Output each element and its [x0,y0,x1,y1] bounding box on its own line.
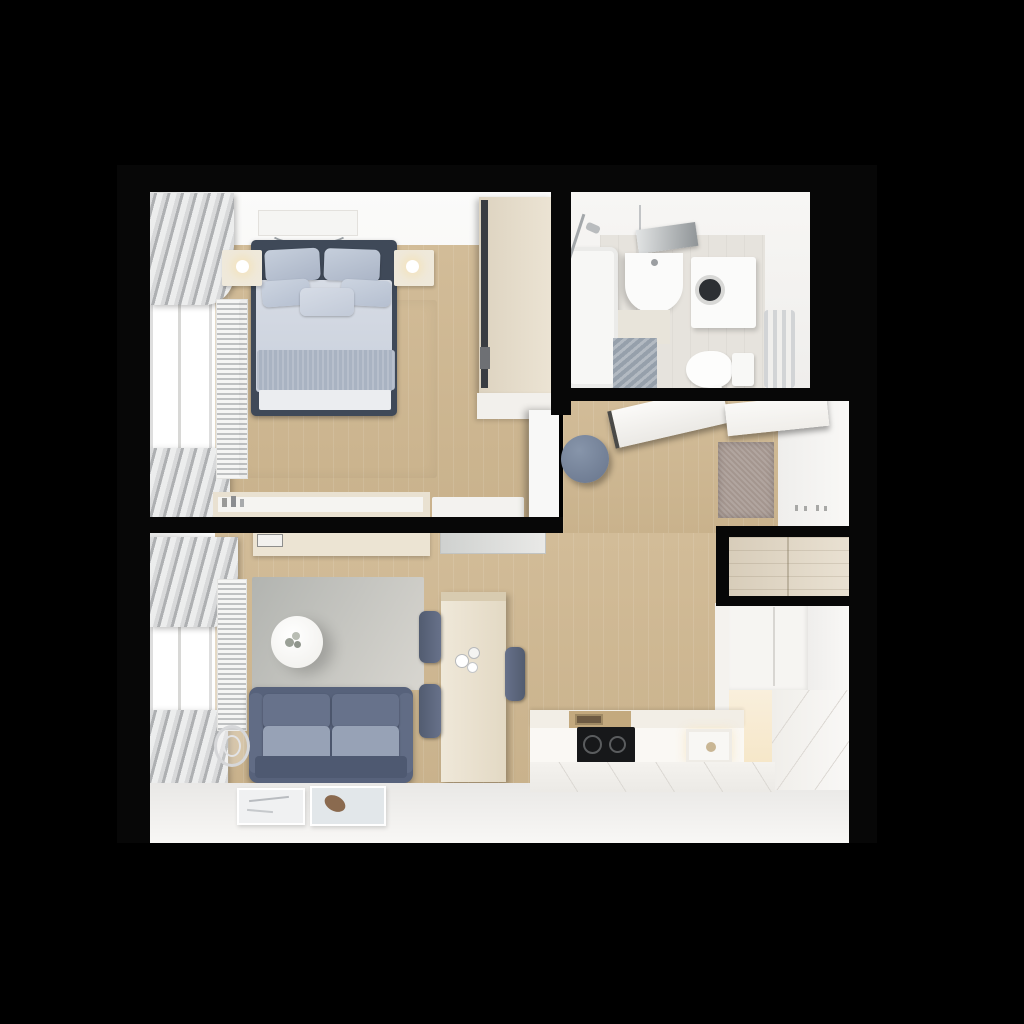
bedroom-door-open [529,410,559,522]
bed-pillow-right [323,248,380,282]
bedroom-dresser [213,492,430,520]
dresser-bottle-3 [240,499,244,507]
wall-hook-2 [804,506,807,511]
nightstand-lamp-right [406,260,419,273]
nightstand-lamp-left [236,260,249,273]
bed-blanket [257,350,395,390]
wall-hook-1 [795,505,798,511]
bath-towel-grey [613,338,657,390]
wall-closet-bottom [716,596,857,606]
bedroom-curtain-top [150,193,234,305]
picture-1-stroke [249,796,289,802]
bedroom-window-mullion [178,300,181,460]
wall-bedroom-living-divider [117,517,563,533]
coffee-table [271,616,323,668]
plant-leaf-3 [294,641,301,648]
sofa-back-cushion-left [263,694,330,728]
wooden-board [569,711,631,728]
dresser-bottle-2 [231,496,236,507]
dining-table [441,592,506,782]
cooktop-burner-left [583,735,602,754]
wardrobe-handle [480,347,490,369]
washing-machine [691,257,756,328]
plant-leaf-2 [292,632,300,640]
cooktop [577,727,635,763]
plant-leaf-1 [285,638,294,647]
wire-basket-inner [223,735,241,757]
sink-drain [706,742,716,752]
living-sideboard [253,529,430,556]
wall-hook-4 [824,506,827,511]
picture-2-leaf [322,792,348,816]
washer-porthole [695,275,725,305]
wall-closet-left [716,526,729,606]
bathtub [566,247,618,388]
sofa [249,687,413,783]
bedroom-window [150,300,212,460]
doormat [718,442,774,518]
toilet-tank [732,353,754,386]
bed-pillow-left [264,248,321,283]
towel-radiator [764,310,795,388]
vanity-sink [625,253,683,313]
tableware-plate-2 [467,662,478,673]
wall-bedroom-bathroom [551,165,571,415]
wall-closet-top [716,526,852,537]
kitchen-sink [686,729,732,763]
picture-1-stroke-2 [247,809,273,813]
dresser-top [218,497,423,512]
wardrobe [479,197,553,393]
bed-sheet [259,390,391,410]
pouf [561,435,609,483]
wall-hook-3 [816,505,819,511]
dining-table-edge [441,592,506,601]
kitchen-right-wall-upper [808,603,849,690]
fridge-tall-unit [729,603,808,690]
kitchen-counter-front [530,762,775,792]
dining-chair-right [505,647,525,701]
fridge-handle [773,607,775,686]
sofa-base [255,756,407,778]
wall-top [117,165,877,192]
framed-picture-2 [310,786,386,826]
dining-chair-left-2 [419,684,441,738]
clock-object [257,534,283,547]
closet-door-divider [787,537,789,596]
bed-pillow-small [300,288,354,316]
tableware-teapot [468,647,480,659]
wall-right [849,388,877,843]
dresser-bottle-1 [222,498,227,507]
floor-plan-render [0,0,1024,1024]
kitchen-counter-top [530,710,744,728]
sink-faucet [651,259,658,266]
kitchen-right-wall-lower [772,690,849,790]
nightstand-left [222,250,262,286]
entry-closet [729,537,850,596]
framed-picture-1 [237,788,305,825]
living-radiator [217,579,247,731]
dining-chair-left-1 [419,611,441,663]
nightstand-right [394,250,434,286]
wall-bathroom-right [810,165,877,401]
cooktop-burner-right [609,736,626,753]
toilet-bowl [686,351,732,388]
board-inset [575,714,603,725]
wire-basket [214,725,250,767]
sofa-back-cushion-right [332,694,399,728]
wall-left [117,165,150,843]
ceiling-light-panel [258,210,358,236]
